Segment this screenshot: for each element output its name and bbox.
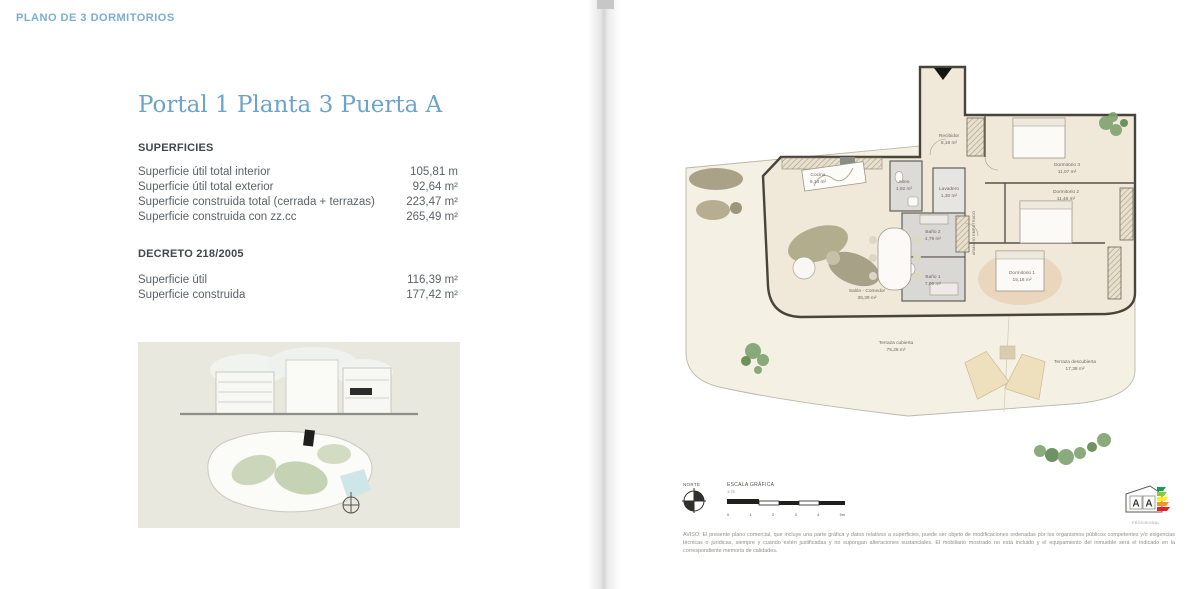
table-row: Superficie construida total (cerrada + t… xyxy=(138,196,458,211)
row-value: 223,47 m² xyxy=(380,196,458,211)
room-label-salon-comedor: Salón - Comedor35,39 m² xyxy=(849,288,885,302)
energy-rating-icon: A A xyxy=(1122,483,1170,515)
table-row: Superficie construida con zz.cc 265,49 m… xyxy=(138,211,458,226)
table-row: Superficie útil total exterior 92,64 m² xyxy=(138,181,458,196)
highlighted-unit-elevation xyxy=(350,388,372,395)
energy-rating-badge: A A PROVISIONAL xyxy=(1122,483,1170,525)
energy-caption: PROVISIONAL xyxy=(1122,521,1170,525)
scale-ticks: 0 1 2 3 4 5m xyxy=(727,513,845,517)
row-value: 105,81 m xyxy=(380,166,458,181)
site-plan-panel xyxy=(138,342,460,528)
room-label-dormitorio-1: Dormitorio 115,16 m² xyxy=(1009,270,1035,284)
page-gutter-tab xyxy=(597,0,614,9)
row-label: Superficie útil xyxy=(138,274,207,289)
decreto-table: Superficie útil 116,39 m² Superficie con… xyxy=(138,274,458,304)
row-value: 265,49 m² xyxy=(380,211,458,226)
table-row: Superficie útil 116,39 m² xyxy=(138,274,458,289)
scale-label: ESCALA GRÁFICA xyxy=(727,482,857,488)
row-label: Superficie útil total interior xyxy=(138,166,270,181)
scale-legend: ESCALA GRÁFICA 1:75 0 1 2 3 4 5m xyxy=(727,482,857,517)
table-row: Superficie construida 177,42 m² xyxy=(138,289,458,304)
superficies-heading: SUPERFICIES xyxy=(138,142,214,154)
table-row: Superficie útil total interior 105,81 m xyxy=(138,166,458,181)
superficies-table: Superficie útil total interior 105,81 m … xyxy=(138,166,458,226)
room-label-bano-2: Baño 24,79 m² xyxy=(925,229,941,243)
page-title: Portal 1 Planta 3 Puerta A xyxy=(138,92,442,118)
row-label: Superficie construida con zz.cc xyxy=(138,211,297,226)
floor-plan-drawing xyxy=(668,55,1168,475)
room-label-cocina: Cocina9,14 m² xyxy=(810,172,826,186)
room-label-aseo: Aseo1,92 m² xyxy=(896,179,912,193)
row-value: 92,64 m² xyxy=(380,181,458,196)
room-label-lavadero: Lavadero1,30 m² xyxy=(939,186,959,200)
scale-bar xyxy=(727,498,847,507)
unit-location-marker xyxy=(303,429,315,446)
site-plan-map xyxy=(208,429,372,513)
room-label-dormitorio-2: Dormitorio 211,46 m² xyxy=(1053,189,1079,203)
room-label-recibidor: Recibidor8,18 m² xyxy=(939,133,959,147)
scale-ratio: 1:75 xyxy=(727,489,857,494)
row-label: Superficie útil total exterior xyxy=(138,181,274,196)
row-value: 177,42 m² xyxy=(380,289,458,304)
page-header: PLANO DE 3 DORMITORIOS xyxy=(16,12,175,24)
floor-plan: Recibidor8,18 m² Cocina9,14 m² Aseo1,92 … xyxy=(668,55,1168,475)
svg-text:A: A xyxy=(1132,499,1139,510)
room-label-dormitorio-3: Dormitorio 311,07 m² xyxy=(1054,162,1080,176)
room-label-terraza-descubierta: Terraza descubierta17,38 m² xyxy=(1054,359,1096,373)
row-label: Superficie construida xyxy=(138,289,245,304)
room-label-bano-1: Baño 17,06 m² xyxy=(925,274,941,288)
bed-dormitorio-3 xyxy=(1013,118,1065,158)
svg-text:A: A xyxy=(1145,499,1152,510)
north-compass-icon xyxy=(681,487,707,513)
page-gutter xyxy=(588,0,620,589)
row-label: Superficie construida total (cerrada + t… xyxy=(138,196,375,211)
site-plan-image xyxy=(138,342,460,528)
north-legend: NORTE xyxy=(681,482,707,518)
row-value: 116,39 m² xyxy=(380,274,458,289)
shaft-label: ARMARIO EMPOTRADO xyxy=(972,211,976,255)
decreto-heading: DECRETO 218/2005 xyxy=(138,248,244,260)
disclaimer-text: AVISO: El presente plano comercial, que … xyxy=(683,531,1175,555)
bed-dormitorio-2 xyxy=(1020,201,1072,243)
room-label-terraza-cubierta: Terraza cubierta75,26 m² xyxy=(879,340,913,354)
